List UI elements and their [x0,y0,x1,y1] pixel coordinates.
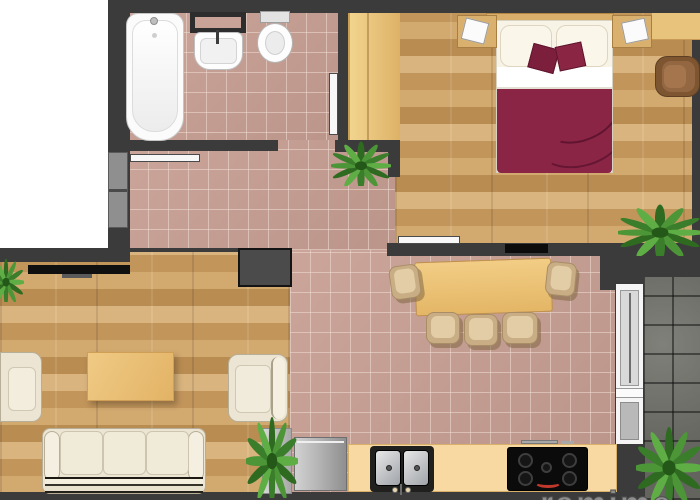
sink-faucet-icon [400,484,402,495]
toilet-bowl [265,31,285,55]
dining-chair [388,263,422,301]
balcony-door [615,283,644,445]
burner-icon [541,462,552,473]
nightstand-left [457,15,497,48]
potted-plant-icon [0,258,24,302]
toilet-tank [260,11,290,23]
armchair-cushion [235,365,271,413]
bed-sheet-band [497,67,612,89]
toilet [257,23,293,63]
duvet-fold-line [531,101,612,173]
sink-knob-icon [392,487,398,493]
sink-faucet-icon [216,30,219,44]
sofa [42,428,206,494]
wall-bathroom-bottom [126,140,278,151]
burner-icon [518,453,533,468]
living-armchair-right [228,354,288,422]
bathroom-sink [194,32,243,70]
bed-duvet [497,89,612,173]
kitchen-sink [370,446,434,492]
bathtub [126,13,184,141]
sofa-cushion [146,431,189,475]
potted-plant-icon [618,204,700,256]
sink-basin-left [375,450,401,486]
bathtub-faucet-icon [150,17,158,25]
chair-seat [550,265,572,291]
cooktop-control-strip [561,441,574,444]
chair-seat [469,318,493,340]
sofa-arm-right [188,431,204,481]
entry-door-divider [109,189,127,192]
dining-table [414,258,553,317]
sink-basin-right [403,450,429,486]
refrigerator [294,437,347,491]
living-tv-stand [62,274,92,278]
sofa-cushion [60,431,103,475]
refrigerator-handle [297,441,344,443]
bedroom-desk [652,13,700,40]
armchair-back-roll [271,357,285,419]
burner-icon [562,453,577,468]
dining-chair [464,314,498,346]
wardrobe [348,13,400,140]
sofa-arm-left [44,431,60,481]
balcony-door-crossbar [616,388,643,398]
dining-chair [502,312,538,344]
chair-seat [431,316,455,338]
table-lamp-icon [621,18,649,45]
bedroom-tv [505,244,548,253]
bathtub-drain-icon [152,33,157,38]
potted-plant-icon [331,141,391,186]
burner-icon [562,471,577,486]
chair-seat [393,268,416,295]
nightstand-right [612,15,652,48]
sink-drain-icon [386,465,392,471]
sink-drain-icon [414,465,420,471]
potted-plant-icon [246,416,298,498]
bedroom-door-leaf [398,236,460,244]
apartment-floorplan: ramime [0,0,700,500]
living-armchair-left [0,352,42,422]
burner-icon [518,471,533,486]
watermark-text: ramime [540,485,673,500]
chair-seat [507,316,533,338]
wardrobe-divider [367,13,369,140]
entry-door [108,152,128,228]
table-lamp-icon [461,17,490,44]
wall-hall-living-edge [130,248,238,252]
balcony-door-glass [620,290,639,386]
armchair-cushion [664,65,686,88]
coffee-table [87,352,174,401]
hall-door-leaf [329,73,338,135]
armchair-cushion [8,367,36,411]
sink-knob-icon [405,487,411,493]
dining-chair [544,261,577,298]
bathroom-door-leaf [130,154,200,162]
living-tv [28,265,130,274]
sofa-backrest [45,477,203,493]
dining-chair [426,312,460,344]
sofa-cushion [103,431,146,475]
balcony-door-glass-line [629,293,631,383]
bedroom-armchair [655,56,700,97]
hallway-closet [238,248,292,287]
cooktop-control-strip [521,440,558,444]
double-bed [496,20,613,173]
